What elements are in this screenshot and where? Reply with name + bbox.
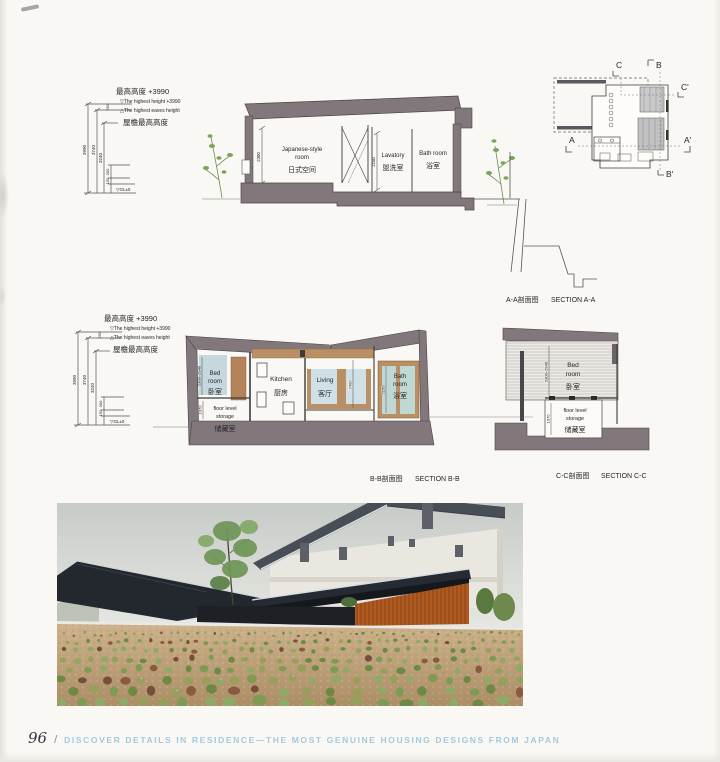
section-c-drawing: Bed room 卧室 2300~2940 floor level storag… bbox=[495, 328, 649, 480]
room-living-cn: 客厅 bbox=[318, 389, 332, 398]
key-plan: B C C' A A' B' bbox=[554, 60, 692, 179]
section-b-drawing: Bed room 卧室 2300~2940 1070 floor level s… bbox=[186, 330, 533, 483]
page-number: 96 bbox=[28, 729, 47, 747]
room-bed-c-en2: room bbox=[566, 371, 581, 378]
footer-title: DISCOVER DETAILS IN RESIDENCE—THE MOST G… bbox=[64, 735, 560, 745]
room-bath-b-en1: Bath bbox=[394, 374, 406, 380]
room-bed-b-cn: 卧室 bbox=[208, 387, 222, 396]
terrain-profile bbox=[474, 152, 597, 287]
plan-marker-c: C bbox=[616, 60, 622, 70]
annot-top-en-eaves: △The highest eaves height bbox=[120, 108, 180, 114]
annot-top-en-height: ▽The highest height +3990 bbox=[120, 99, 181, 105]
room-storage-c-en2: storage bbox=[566, 416, 584, 422]
room-lavatory-cn: 盥洗室 bbox=[383, 163, 404, 172]
annot-top-cn-eaves: 屋檐最高高度 bbox=[123, 117, 168, 127]
room-bath-b-en2: room bbox=[393, 382, 407, 388]
dim-150: 150 bbox=[98, 409, 103, 416]
dim-3240: 3240 bbox=[98, 152, 103, 163]
plan-marker-b2: B' bbox=[666, 169, 674, 179]
dim-3740: 3740 bbox=[82, 374, 87, 385]
dim-c-storage: 1070 bbox=[546, 414, 551, 424]
page-footer: 96 / DISCOVER DETAILS IN RESIDENCE—THE M… bbox=[28, 729, 688, 747]
room-bath-a-en: Bath room bbox=[419, 151, 447, 157]
plan-marker-b: B bbox=[656, 60, 662, 70]
section-a-drawing: 2300 2150 Japanese-style room 日式空间 Lavat… bbox=[202, 96, 597, 304]
dim-300: 300 bbox=[105, 168, 110, 175]
caption-section-c-en: SECTION C-C bbox=[601, 473, 647, 480]
plan-marker-c2: C' bbox=[681, 82, 689, 92]
room-storage-b-en1: floor level bbox=[213, 406, 236, 412]
house-photo bbox=[57, 503, 523, 706]
caption-section-b-en: SECTION B-B bbox=[415, 476, 460, 483]
room-japanese-en2: room bbox=[295, 155, 309, 161]
beam-wood bbox=[252, 349, 374, 358]
dim-250: 250 bbox=[97, 331, 102, 338]
room-japanese-cn: 日式空间 bbox=[288, 165, 316, 174]
roof-a bbox=[245, 96, 461, 119]
dim-a-2300: 2300 bbox=[256, 152, 261, 162]
room-living-en: Living bbox=[317, 377, 334, 384]
gl-label: ▽GL±0 bbox=[110, 419, 125, 424]
dim-b-storage: 1070 bbox=[198, 405, 203, 415]
dim-3740: 3740 bbox=[91, 144, 96, 155]
room-kitchen-cn: 厨房 bbox=[274, 388, 288, 397]
bedroom-wood-panel bbox=[231, 357, 246, 400]
annot-mid-cn-max: 最高高度 +3990 bbox=[104, 313, 157, 323]
dim-c-bed: 2300~2940 bbox=[544, 361, 549, 382]
gl-label: ▽GL±0 bbox=[116, 187, 131, 192]
plan-marker-a: A bbox=[569, 135, 575, 145]
room-bed-b-en2: room bbox=[208, 379, 222, 385]
caption-section-a-cn: A-A剖面图 bbox=[506, 295, 539, 304]
room-bed-c-cn: 卧室 bbox=[566, 382, 580, 391]
base-a bbox=[241, 183, 474, 210]
footer-separator: / bbox=[54, 734, 57, 746]
caption-section-a-en: SECTION A-A bbox=[551, 297, 596, 304]
room-storage-c-en1: floor level bbox=[563, 408, 586, 414]
book-page: 最高高度 +3990 ▽The highest height +3990 △Th… bbox=[0, 0, 720, 762]
door-notch bbox=[242, 160, 250, 174]
dim-150: 150 bbox=[105, 177, 110, 184]
room-bed-c-en1: Bed bbox=[567, 362, 579, 369]
room-kitchen-en: Kitchen bbox=[270, 376, 292, 383]
annot-mid-en-height: ▽The highest height +3990 bbox=[110, 326, 171, 332]
dim-3990: 3990 bbox=[82, 144, 87, 155]
room-storage-b-cn: 储藏室 bbox=[215, 424, 236, 433]
dim-a-2150: 2150 bbox=[371, 157, 376, 167]
plan-marker-a2: A' bbox=[684, 135, 692, 145]
plant-icon bbox=[486, 139, 515, 204]
room-bath-b-cn: 浴室 bbox=[393, 391, 407, 400]
room-storage-b-en2: storage bbox=[216, 414, 234, 420]
height-annotation-mid: 最高高度 +3990 ▽The highest height +3990 △Th… bbox=[72, 313, 190, 427]
annot-mid-en-eaves: △The highest eaves height bbox=[110, 335, 170, 341]
dim-300: 300 bbox=[98, 400, 103, 407]
annot-mid-cn-eaves: 屋檐最高高度 bbox=[113, 344, 158, 354]
height-annotation-top: 最高高度 +3990 ▽The highest height +3990 △Th… bbox=[82, 86, 181, 195]
dim-b-bath: 2150 bbox=[381, 385, 386, 395]
room-lavatory-en: Lavatory bbox=[381, 153, 404, 159]
room-storage-c-cn: 储藏室 bbox=[565, 425, 586, 434]
room-bath-a-cn: 浴室 bbox=[426, 161, 440, 170]
wall-a-right bbox=[453, 124, 461, 194]
room-bed-b-en1: Bed bbox=[210, 371, 221, 377]
plant-icon bbox=[203, 134, 233, 198]
dim-b-living: 2400 bbox=[348, 380, 353, 390]
caption-section-c-cn: C-C剖面图 bbox=[556, 471, 589, 480]
base-b bbox=[189, 421, 434, 445]
dim-3240: 3240 bbox=[90, 382, 95, 393]
dim-3990: 3990 bbox=[72, 374, 77, 385]
annot-top-cn-max: 最高高度 +3990 bbox=[116, 86, 169, 96]
dim-250: 250 bbox=[105, 103, 110, 110]
dim-b-bed: 2300~2940 bbox=[197, 365, 202, 386]
caption-section-b-cn: B-B剖面图 bbox=[370, 474, 403, 483]
room-japanese-en1: Japanese-style bbox=[282, 147, 323, 153]
